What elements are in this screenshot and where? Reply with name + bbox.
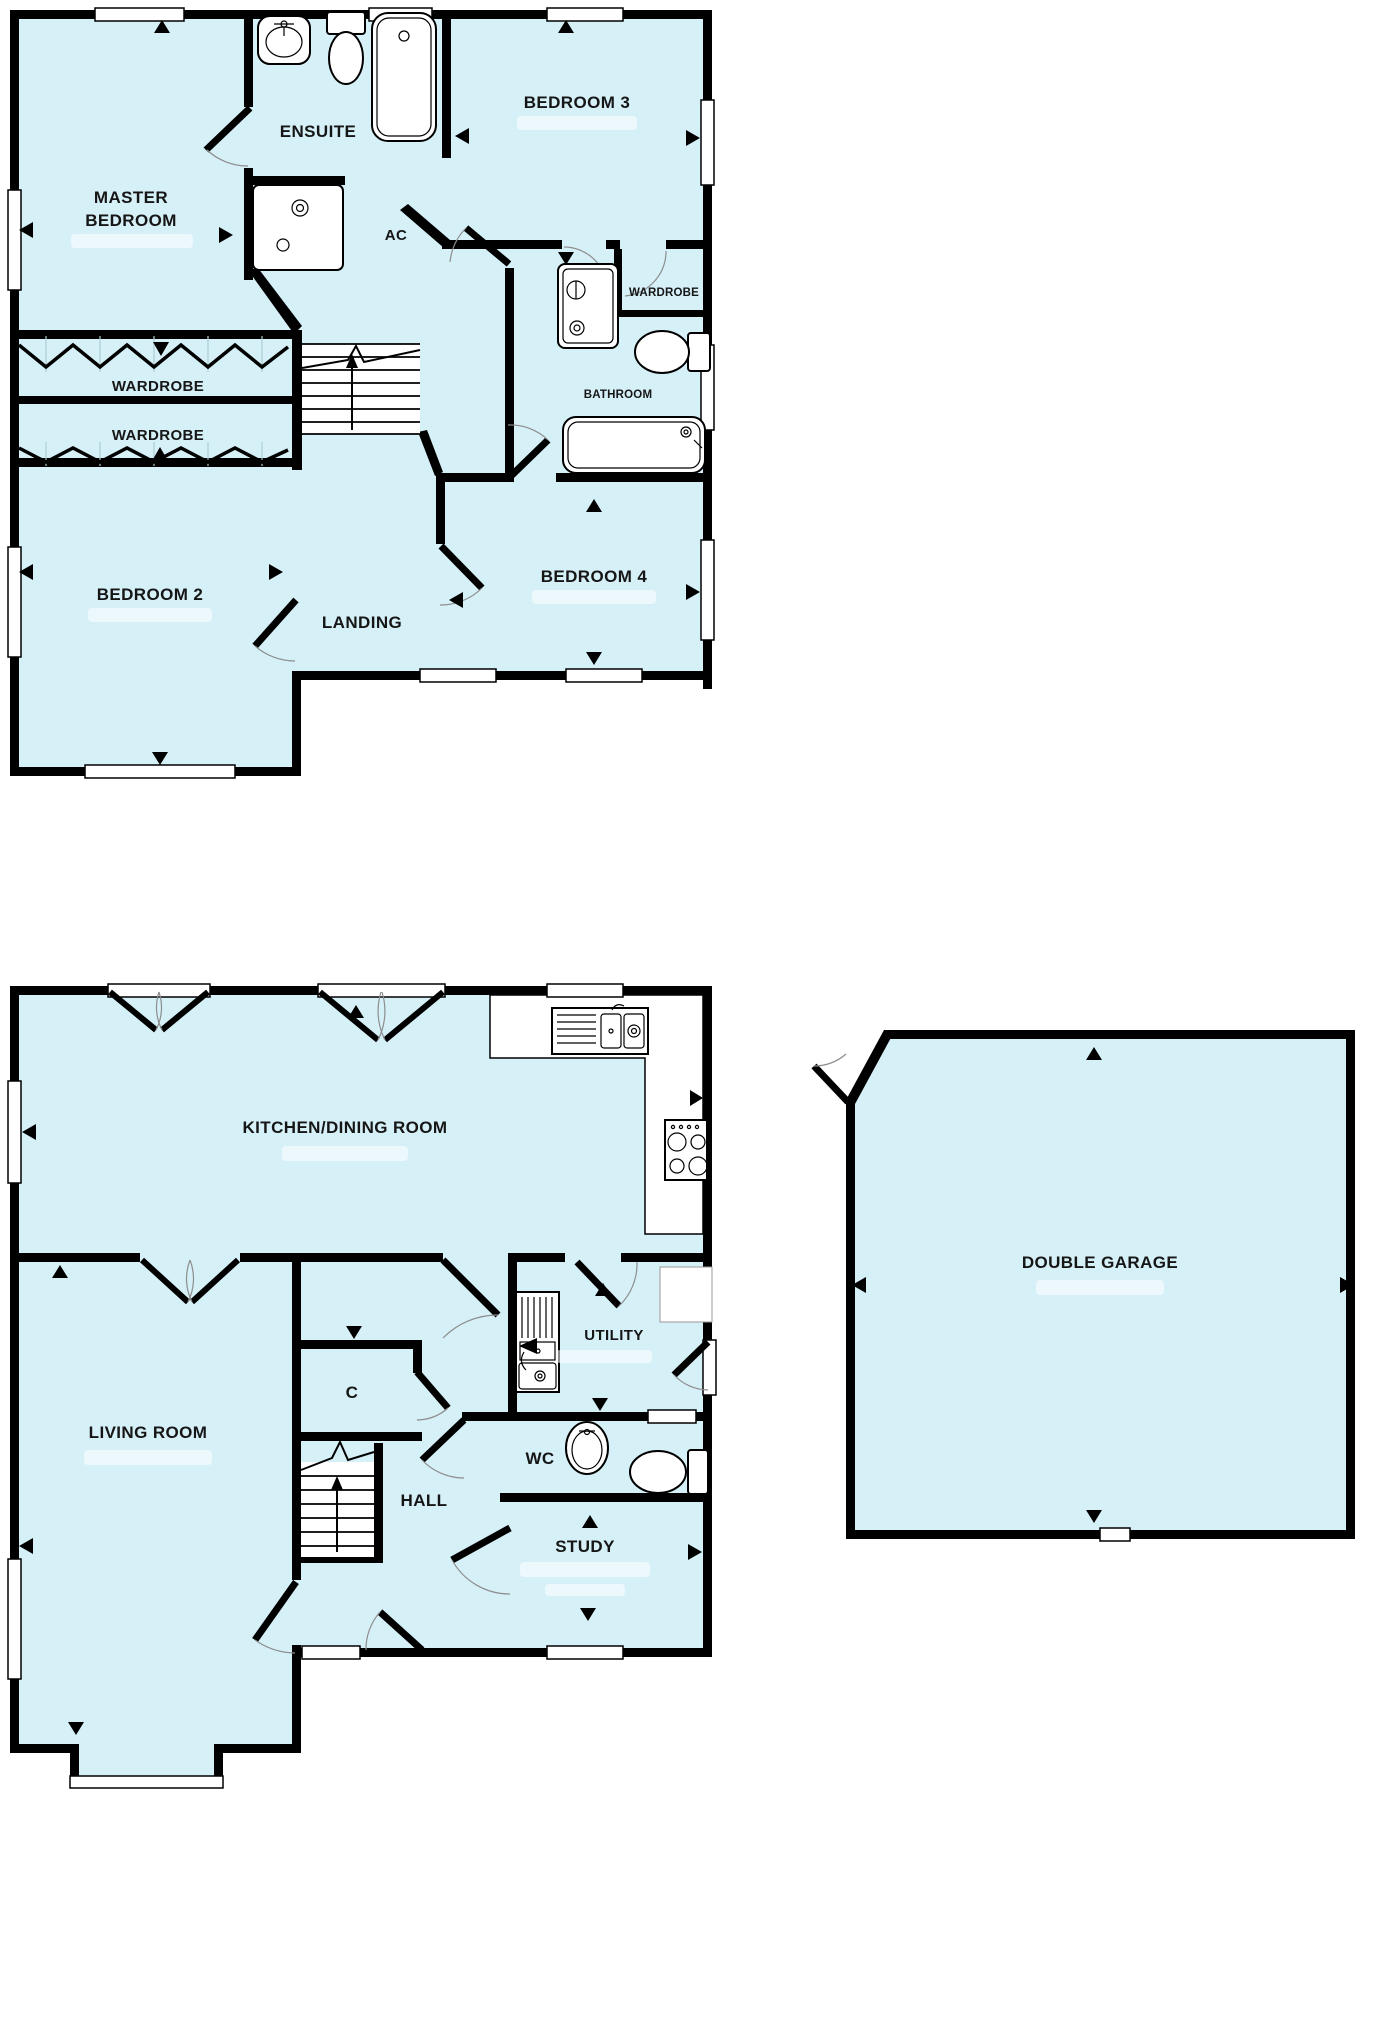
wardrobe-top-label: WARDROBE (112, 378, 204, 395)
ac-vanity-icon (253, 185, 343, 270)
garage-side-door (814, 1054, 848, 1102)
utility-label: UTILITY (584, 1327, 643, 1344)
ensuite-bath-icon (372, 13, 436, 141)
floorplan-drawing: MASTER BEDROOM ENSUITE AC BEDROOM 3 WARD… (0, 0, 1382, 2025)
wc-basin-icon (566, 1422, 608, 1474)
wardrobe-bottom-label: WARDROBE (112, 427, 204, 444)
living-room-label: LIVING ROOM (89, 1423, 208, 1442)
kitchen-dining-label: KITCHEN/DINING ROOM (243, 1118, 448, 1137)
utility-appliance (660, 1267, 712, 1322)
faint-dimension-text (1036, 1280, 1164, 1295)
hall-label: HALL (401, 1491, 448, 1510)
ensuite-label: ENSUITE (280, 122, 356, 141)
bathroom-label: BATHROOM (584, 389, 652, 401)
first-floor-plan: MASTER BEDROOM ENSUITE AC BEDROOM 3 WARD… (8, 8, 714, 778)
bathroom-vanity-icon (558, 264, 618, 348)
ensuite-toilet-icon (327, 12, 365, 84)
ground-floor-footprint (10, 986, 712, 1788)
floorplan-canvas: MASTER BEDROOM ENSUITE AC BEDROOM 3 WARD… (0, 0, 1382, 2025)
bedroom2-label: BEDROOM 2 (97, 585, 204, 604)
wardrobe-small-label: WARDROBE (629, 287, 699, 299)
bedroom3-label: BEDROOM 3 (524, 93, 631, 112)
stove-icon (665, 1120, 707, 1180)
master-bedroom-label-1: MASTER (94, 188, 168, 207)
garage-door-gap (1100, 1528, 1130, 1541)
study-label: STUDY (555, 1537, 615, 1556)
wc-toilet-icon (630, 1450, 708, 1494)
kitchen-sink-icon (552, 1005, 648, 1054)
ground-floor-plan: KITCHEN/DINING ROOM LIVING ROOM C UTILIT… (8, 984, 716, 1788)
master-bedroom-label-2: BEDROOM (85, 211, 177, 230)
bathroom-bath-icon (563, 417, 705, 473)
wc-label: WC (525, 1449, 554, 1468)
utility-sink-icon (516, 1292, 559, 1392)
bedroom4-label: BEDROOM 4 (541, 567, 648, 586)
garage-plan: DOUBLE GARAGE (814, 1030, 1355, 1541)
ac-label: AC (385, 227, 407, 244)
double-garage-label: DOUBLE GARAGE (1022, 1253, 1178, 1272)
stairs-first-floor (302, 344, 420, 434)
landing-label: LANDING (322, 613, 402, 632)
ensuite-basin-icon (258, 16, 310, 64)
cupboard-label: C (346, 1383, 359, 1402)
bathroom-toilet-icon (635, 331, 710, 373)
